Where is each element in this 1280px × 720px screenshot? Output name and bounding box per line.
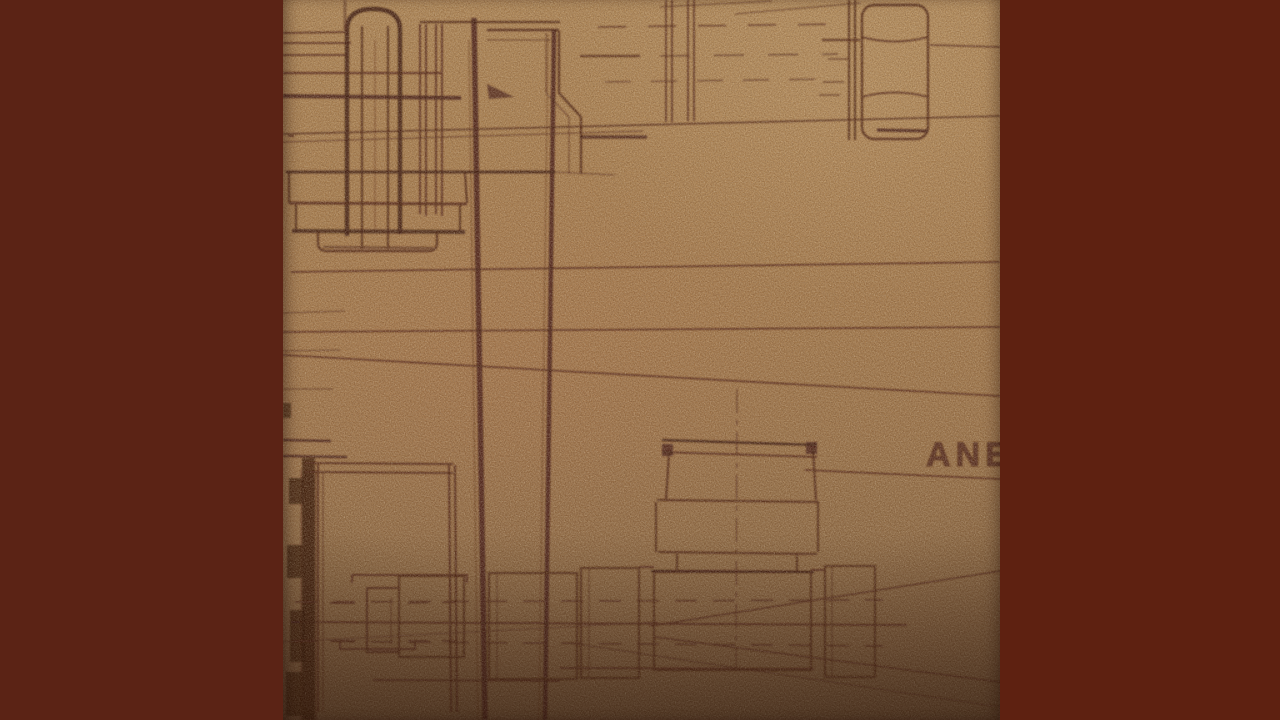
blueprint-drawing: ANE [283, 0, 1000, 720]
video-frame: ANE [0, 0, 1280, 720]
film-grain-light [283, 0, 1000, 720]
album-art-photo: ANE [283, 0, 1000, 720]
pillarbox-left-bar [0, 0, 283, 720]
pillarbox-right-bar [1000, 0, 1280, 720]
